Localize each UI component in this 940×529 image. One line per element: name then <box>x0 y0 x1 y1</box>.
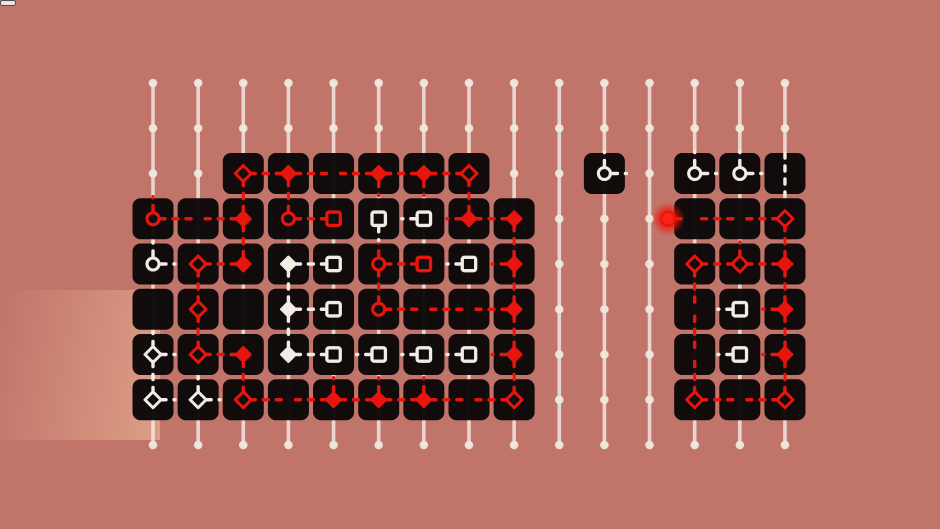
grid-dot <box>600 260 609 269</box>
grid-dot <box>239 124 248 133</box>
grid-dot <box>736 79 745 88</box>
grid-dot <box>510 169 519 178</box>
puzzle-tile[interactable] <box>268 198 309 239</box>
grid-dot <box>510 124 519 133</box>
puzzle-tile[interactable] <box>448 379 489 420</box>
puzzle-tile[interactable] <box>448 153 489 194</box>
grid-dot <box>645 305 654 314</box>
puzzle-tile[interactable] <box>358 289 399 330</box>
puzzle-tile[interactable] <box>494 379 535 420</box>
puzzle-tile[interactable] <box>313 334 354 375</box>
grid-dot <box>600 395 609 404</box>
grid-dot <box>555 169 564 178</box>
puzzle-tile[interactable] <box>178 289 219 330</box>
grid-dot <box>329 124 338 133</box>
grid-dot <box>329 79 338 88</box>
grid-dot <box>600 214 609 223</box>
grid-dot <box>194 441 203 450</box>
puzzle-tile[interactable] <box>268 379 309 420</box>
grid-dot <box>510 79 519 88</box>
puzzle-tile[interactable] <box>223 289 264 330</box>
grid-dot <box>600 79 609 88</box>
puzzle-tile[interactable] <box>674 379 715 420</box>
grid-dot <box>149 169 158 178</box>
grid-dot <box>645 350 654 359</box>
grid-dot <box>555 79 564 88</box>
grid-dot <box>645 124 654 133</box>
grid-dot <box>690 124 699 133</box>
puzzle-tile[interactable] <box>313 153 354 194</box>
puzzle-tile[interactable] <box>448 289 489 330</box>
grid-dot <box>284 124 293 133</box>
puzzle-tile[interactable] <box>764 379 805 420</box>
grid-dot <box>510 441 519 450</box>
grid-dot <box>420 79 429 88</box>
grid-dot <box>600 305 609 314</box>
menu-button[interactable] <box>0 0 16 6</box>
grid-dot <box>329 441 338 450</box>
grid-dot <box>600 350 609 359</box>
grid-dot <box>284 79 293 88</box>
puzzle-tile[interactable] <box>719 379 760 420</box>
grid-dot <box>420 441 429 450</box>
grid-dot <box>645 260 654 269</box>
grid-dot <box>600 124 609 133</box>
puzzle-board[interactable] <box>0 0 940 529</box>
grid-dot <box>465 441 474 450</box>
line-end-dot[interactable] <box>663 213 674 224</box>
grid-dot <box>465 124 474 133</box>
puzzle-tile[interactable] <box>178 244 219 285</box>
puzzle-tile[interactable] <box>674 334 715 375</box>
puzzle-tile[interactable] <box>719 198 760 239</box>
puzzle-tile[interactable] <box>403 289 444 330</box>
grid-dot <box>284 441 293 450</box>
grid-dot <box>149 441 158 450</box>
grid-dot <box>194 169 203 178</box>
puzzle-tile[interactable] <box>403 244 444 285</box>
grid-dot <box>645 169 654 178</box>
grid-dot <box>736 124 745 133</box>
puzzle-tile[interactable] <box>223 379 264 420</box>
grid-dot <box>555 395 564 404</box>
grid-dot <box>555 350 564 359</box>
grid-dot <box>239 79 248 88</box>
grid-dot <box>781 79 790 88</box>
puzzle-tile[interactable] <box>178 198 219 239</box>
puzzle-tile[interactable] <box>223 153 264 194</box>
puzzle-tile[interactable] <box>313 289 354 330</box>
puzzle-tile[interactable] <box>674 289 715 330</box>
grid-dot <box>781 441 790 450</box>
grid-dot <box>149 79 158 88</box>
grid-dot <box>374 124 383 133</box>
grid-dot <box>555 305 564 314</box>
grid-dot <box>374 79 383 88</box>
puzzle-tile[interactable] <box>674 244 715 285</box>
grid-dot <box>149 124 158 133</box>
grid-dot <box>690 79 699 88</box>
grid-dot <box>239 441 248 450</box>
grid-dot <box>465 79 474 88</box>
grid-dot <box>736 441 745 450</box>
puzzle-tile[interactable] <box>133 289 174 330</box>
grid-dot <box>194 124 203 133</box>
puzzle-tile[interactable] <box>313 244 354 285</box>
grid-dot <box>645 395 654 404</box>
grid-dot <box>374 441 383 450</box>
grid-dot <box>781 124 790 133</box>
puzzle-tile[interactable] <box>178 334 219 375</box>
grid-dot <box>645 79 654 88</box>
grid-dot <box>194 79 203 88</box>
grid-dot <box>555 124 564 133</box>
grid-dot <box>600 441 609 450</box>
grid-dot <box>690 441 699 450</box>
grid-dot <box>645 441 654 450</box>
grid-dot <box>555 260 564 269</box>
puzzle-tile[interactable] <box>764 198 805 239</box>
grid-dot <box>555 214 564 223</box>
grid-dot <box>555 441 564 450</box>
game-screen <box>0 0 940 529</box>
grid-dot <box>420 124 429 133</box>
puzzle-tile[interactable] <box>313 198 354 239</box>
